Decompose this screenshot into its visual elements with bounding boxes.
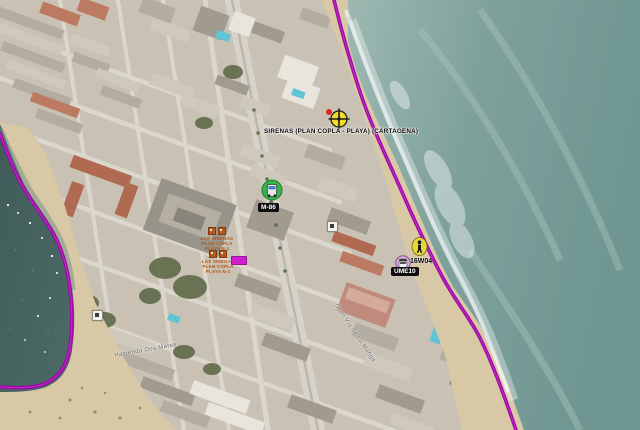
siren-crosshair-icon <box>322 103 352 131</box>
road-sign-icon <box>327 221 338 232</box>
siren-marker[interactable] <box>322 103 352 131</box>
satellite-basemap[interactable] <box>0 0 640 430</box>
green-vehicle-icon <box>261 179 283 201</box>
person-icon <box>411 237 428 256</box>
orange-building-icon <box>208 227 216 235</box>
ume10-label[interactable]: UME10 <box>391 267 419 276</box>
map-viewport[interactable]: SIRENAS (PLAN COPLA - PLAYA) (CARTAGENA)… <box>0 0 640 430</box>
orange-building-icon <box>219 250 227 258</box>
beach-sign-icon <box>92 310 103 321</box>
orange-building-icon <box>209 250 217 258</box>
m86-marker[interactable] <box>261 179 283 201</box>
orange-poi-line: PLAYA N-2 <box>197 269 239 274</box>
m86-marker-label: M-86 <box>258 203 279 212</box>
orange-poi-1[interactable]: LAS SIRENAS PLAN COPLA PLAYA N-1 <box>196 227 238 251</box>
orange-building-icon <box>218 227 226 235</box>
siren-marker-label: SIRENAS (PLAN COPLA - PLAYA) (CARTAGENA) <box>264 128 414 135</box>
unit-16w04-label: 16W04 <box>410 258 432 265</box>
person-marker[interactable] <box>411 237 428 256</box>
magenta-tag-icon[interactable] <box>231 256 247 265</box>
